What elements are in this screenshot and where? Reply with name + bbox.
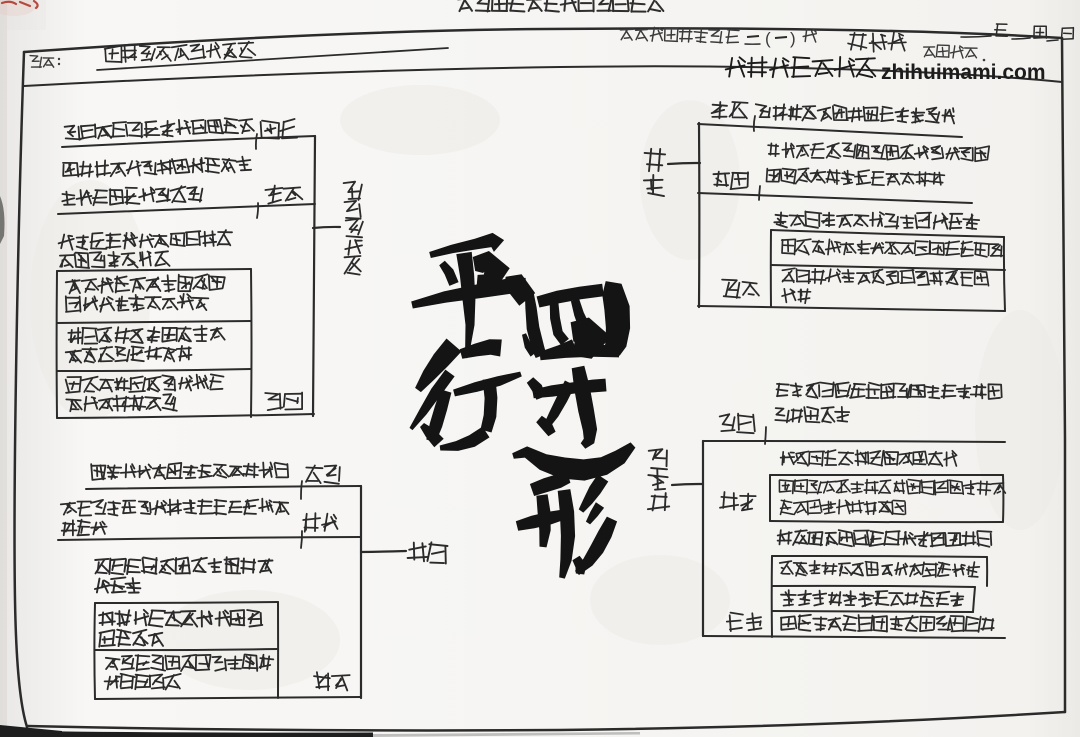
svg-text:): ) bbox=[790, 29, 796, 48]
svg-text:zhihuimami.com: zhihuimami.com bbox=[881, 61, 1046, 84]
svg-text:(: ( bbox=[765, 29, 771, 48]
